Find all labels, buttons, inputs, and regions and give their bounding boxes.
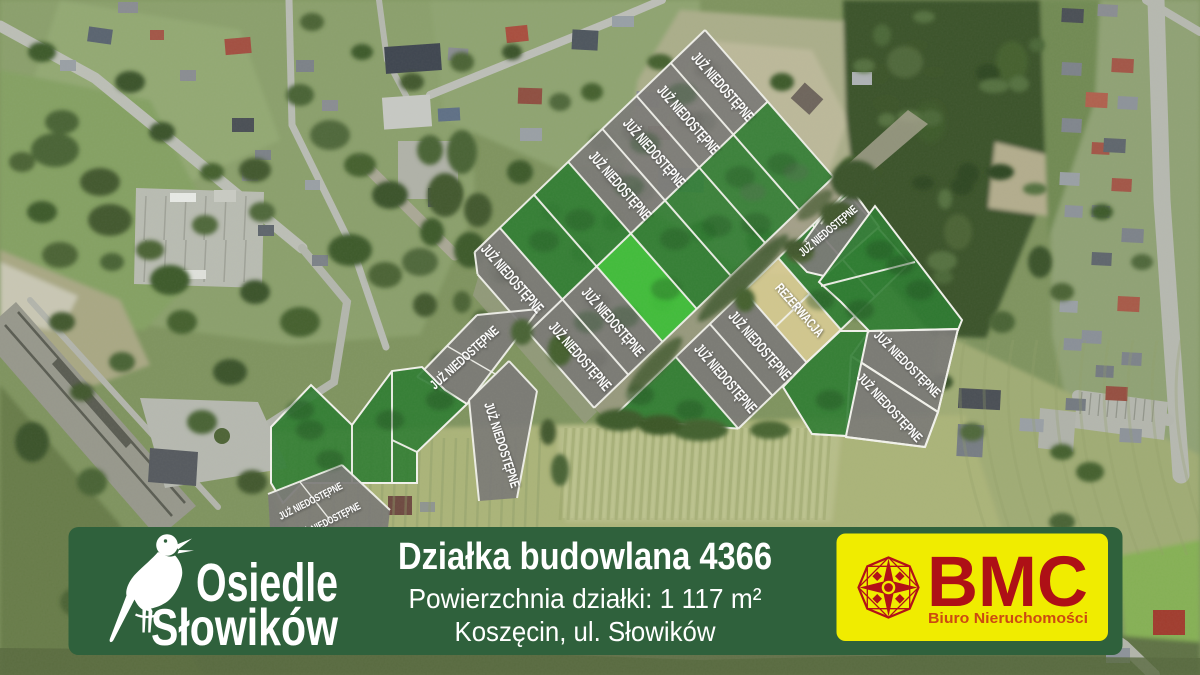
svg-text:Działka budowlana 4366: Działka budowlana 4366: [398, 536, 772, 578]
svg-text:Powierzchnia działki: 1 117 m²: Powierzchnia działki: 1 117 m²: [409, 583, 762, 614]
svg-text:Koszęcin, ul. Słowików: Koszęcin, ul. Słowików: [455, 616, 717, 647]
svg-text:Słowików: Słowików: [151, 599, 338, 657]
svg-text:Biuro Nieruchomości: Biuro Nieruchomości: [928, 610, 1088, 627]
